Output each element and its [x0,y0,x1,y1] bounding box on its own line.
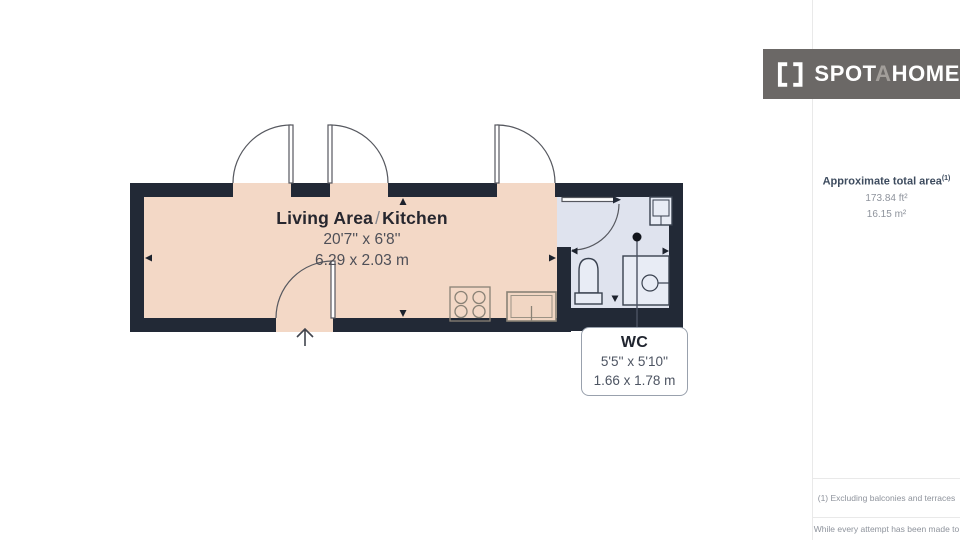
wc-label-box: WC 5'5'' x 5'10'' 1.66 x 1.78 m [581,327,688,396]
wall-left [130,183,144,332]
total-area-title-text: Approximate total area [823,176,942,188]
footnote-disclaimer: While every attempt has been made to [813,517,960,540]
logo-part-home: HOME [892,61,960,86]
door-leaf [562,198,615,202]
door-arc [330,125,388,183]
brackets-icon [776,59,804,90]
door-leaf [328,125,332,183]
room-title: WC [582,332,687,353]
door [328,125,388,183]
total-area-block: Approximate total area(1) 173.84 ft² 16.… [813,172,960,221]
doorway-floor [233,183,291,197]
door-arc [497,125,555,183]
wc-doorway-floor [557,197,571,250]
door-arc [233,125,291,183]
door-leaf [289,125,293,183]
room-dimensions-imperial: 5'5'' x 5'10'' [582,353,687,372]
label-anchor-dot [633,233,642,242]
doorway-floor [330,183,388,197]
floorplan-page: Living Area/Kitchen 20'7'' x 6'8'' 6.29 … [0,0,960,540]
living-room-floor [144,197,557,318]
wall-bottom-segment [130,318,276,332]
door-leaf [331,261,335,318]
total-area-footnote-marker: (1) [942,175,951,182]
room-dimensions-metric: 1.66 x 1.78 m [582,372,687,391]
total-area-metric: 16.15 m² [813,209,960,221]
wall-top-segment [388,183,497,197]
logo-wordmark: SPOTAHOME [814,61,960,87]
wall-wc-divider [557,247,571,318]
doorway-floor [497,183,555,197]
floorplan-drawing [0,0,810,540]
logo-part-a: A [875,61,892,86]
door [495,125,555,183]
total-area-title: Approximate total area(1) [813,172,960,189]
toilet-icon [575,259,602,305]
spotahome-logo: SPOTAHOME [763,49,960,99]
door [233,125,293,183]
kitchen-sink-icon [507,292,556,321]
total-area-imperial: 173.84 ft² [813,193,960,205]
footnote-exclusions: (1) Excluding balconies and terraces [813,478,960,517]
wall-top-segment [130,183,233,197]
door-leaf [495,125,499,183]
logo-part-spot: SPOT [814,61,875,86]
bathroom-sink-icon [650,197,672,225]
shower-icon [623,256,669,305]
wall-top-segment [291,183,330,197]
wall-top-segment [555,183,683,197]
